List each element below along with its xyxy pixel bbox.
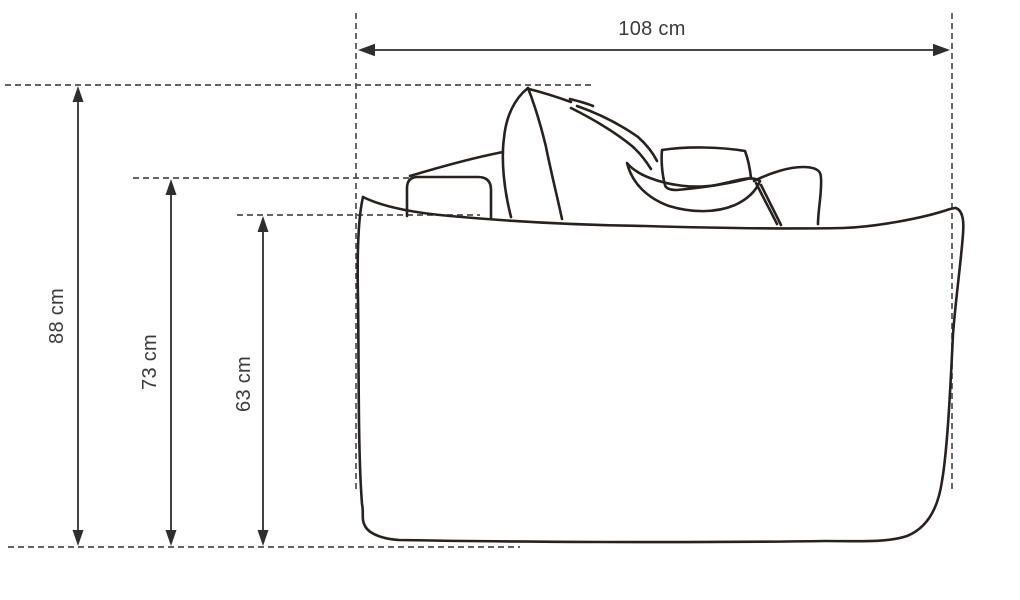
dimension-arrow-back-height [166, 179, 177, 546]
back-height-dimension-label: 73 cm [138, 322, 162, 402]
overall-height-arrowhead-bottom [73, 530, 84, 546]
back-height-arrowhead-bottom [166, 530, 177, 546]
dimension-diagram: 108 cm 88 cm 73 cm 63 cm [0, 0, 1020, 600]
seat-height-arrowhead-top [258, 216, 269, 232]
back-cushion-crease [528, 88, 562, 219]
seat-height-dimension-label: 63 cm [232, 344, 256, 424]
dimension-arrow-overall-height [73, 86, 84, 546]
diagram-artwork [0, 0, 1020, 600]
back-cushion-left-edge [503, 88, 528, 217]
sofa-illustration [358, 88, 964, 542]
width-arrowhead-right [933, 44, 950, 56]
sofa-body-outline [358, 197, 964, 542]
back-cushion-top-edge [529, 89, 571, 102]
width-dimension-label: 108 cm [602, 17, 702, 41]
dimension-arrow-seat-height [258, 216, 269, 546]
dimension-arrow-width [358, 44, 950, 56]
right-pillow-left-edge-b [761, 185, 781, 225]
overall-height-dimension-label: 88 cm [45, 276, 69, 356]
reference-dashed-lines [5, 13, 952, 547]
armrest-top-edge [410, 152, 503, 176]
overall-height-arrowhead-top [73, 86, 84, 102]
right-pillow-left-edge-a [756, 183, 777, 224]
back-height-arrowhead-top [166, 179, 177, 195]
seat-height-arrowhead-bottom [258, 530, 269, 546]
back-cushion-flap [570, 99, 593, 106]
width-arrowhead-left [358, 44, 375, 56]
right-pillow-top-and-right-edge [754, 167, 821, 224]
